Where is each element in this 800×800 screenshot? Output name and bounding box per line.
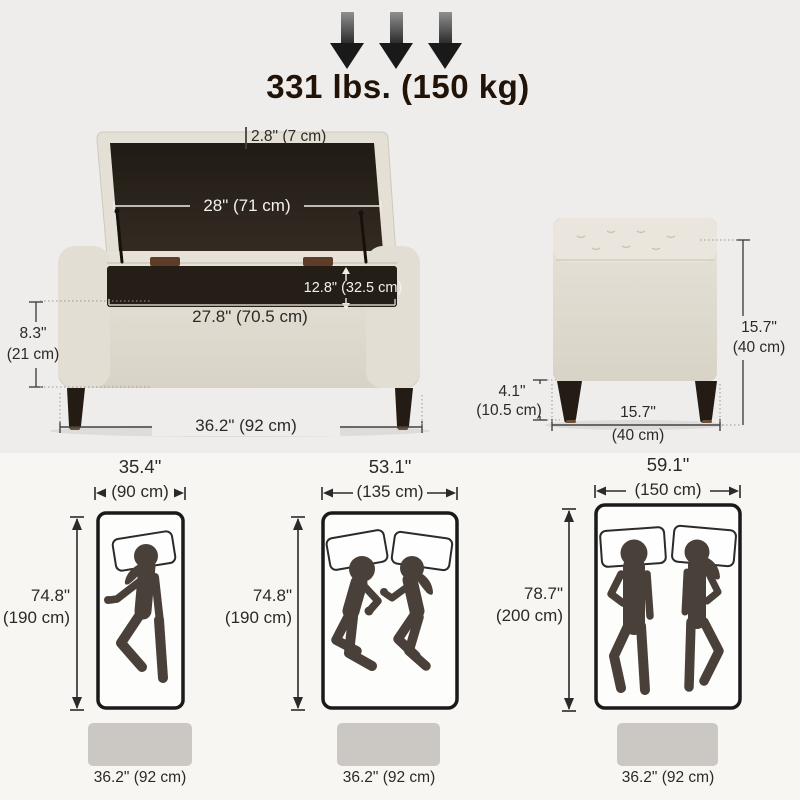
dim-arrow-up: [293, 518, 303, 530]
diagram-graphics: [0, 0, 800, 800]
side-depth-in-label: 15.7": [598, 404, 678, 422]
dim-arrow-left: [596, 487, 606, 496]
side-leg: [695, 381, 717, 423]
side-depth-cm-label: (40 cm): [598, 427, 678, 445]
mattress2-width-in: 53.1": [340, 456, 440, 477]
overall-width-label: 36.2" (92 cm): [152, 416, 340, 436]
mattress2-length-in: 74.8": [215, 586, 292, 606]
storage-depth-label: 12.8" (32.5 cm): [277, 280, 429, 297]
interior-width-label: 27.8" (70.5 cm): [160, 307, 340, 327]
dim-arrow-up: [72, 518, 82, 530]
lid-width-label: 28" (71 cm): [167, 196, 327, 216]
mattress3-ottoman-width: 36.2" (92 cm): [598, 769, 738, 787]
mattress2-ottoman-width: 36.2" (92 cm): [319, 769, 459, 787]
mattress1-length-in: 74.8": [0, 586, 70, 606]
mattress2-length-cm: (190 cm): [210, 608, 292, 628]
ottoman-footprint-block: [617, 723, 718, 766]
side-leg: [557, 381, 582, 423]
dim-arrow-down: [564, 698, 574, 710]
rod-knob: [114, 208, 119, 213]
rod-knob: [358, 210, 363, 215]
mattress3-length-in: 78.7": [486, 584, 563, 604]
mattress2-width-cm: (135 cm): [340, 482, 440, 502]
front-leg: [67, 388, 85, 430]
mattress-king-diagram: [562, 485, 740, 766]
dim-arrow-right: [729, 487, 739, 496]
down-arrow-icon: [341, 12, 354, 44]
mattress3-width-in: 59.1": [618, 454, 718, 475]
length-dimension: [70, 517, 84, 710]
lid-thickness-label: 2.8" (7 cm): [251, 128, 326, 146]
dim-arrow-right: [446, 489, 456, 498]
hinge: [150, 257, 180, 266]
mattress1-width-cm: (90 cm): [90, 482, 190, 502]
ottoman-footprint-block: [337, 723, 440, 766]
length-dimension: [562, 509, 576, 711]
leg-pad: [566, 420, 576, 423]
mattress3-width-cm: (150 cm): [618, 480, 718, 500]
seat-height-in-label: 8.3": [2, 325, 64, 343]
leg-height-in-label: 4.1": [472, 383, 552, 401]
mattress1-ottoman-width: 36.2" (92 cm): [70, 769, 210, 787]
mattress1-length-cm: (190 cm): [0, 608, 70, 628]
length-dimension: [291, 517, 305, 710]
side-height-cm-label: (40 cm): [720, 339, 798, 357]
leg-pad: [702, 420, 712, 423]
mattress1-width-in: 35.4": [90, 456, 190, 477]
left-arm: [58, 246, 110, 388]
down-arrow-icon: [379, 43, 413, 69]
product-dimension-diagram: 331 lbs. (150 kg) 2.8" (7 cm) 28" (71 cm…: [0, 0, 800, 800]
hinge: [303, 257, 333, 266]
front-leg: [395, 388, 413, 430]
mattress3-length-cm: (200 cm): [481, 606, 563, 626]
down-arrow-icon: [428, 43, 462, 69]
dim-arrow-up: [564, 510, 574, 522]
mattress-single-diagram: [70, 487, 192, 766]
side-height-in-label: 15.7": [720, 319, 798, 337]
down-arrow-icon: [330, 43, 364, 69]
side-view-ottoman: [545, 218, 725, 430]
dim-arrow-down: [72, 697, 82, 709]
tufted-cushion: [553, 218, 717, 262]
seat-height-cm-label: (21 cm): [0, 346, 70, 364]
dim-arrow-down: [293, 697, 303, 709]
ottoman-footprint-block: [88, 723, 192, 766]
dim-arrow-left: [323, 489, 333, 498]
weight-limit-label: 331 lbs. (150 kg): [198, 68, 598, 106]
mattress-double-diagram: [291, 487, 457, 766]
leg-height-cm-label: (10.5 cm): [466, 402, 552, 420]
down-arrow-icon: [439, 12, 452, 44]
down-arrow-icon: [390, 12, 403, 44]
